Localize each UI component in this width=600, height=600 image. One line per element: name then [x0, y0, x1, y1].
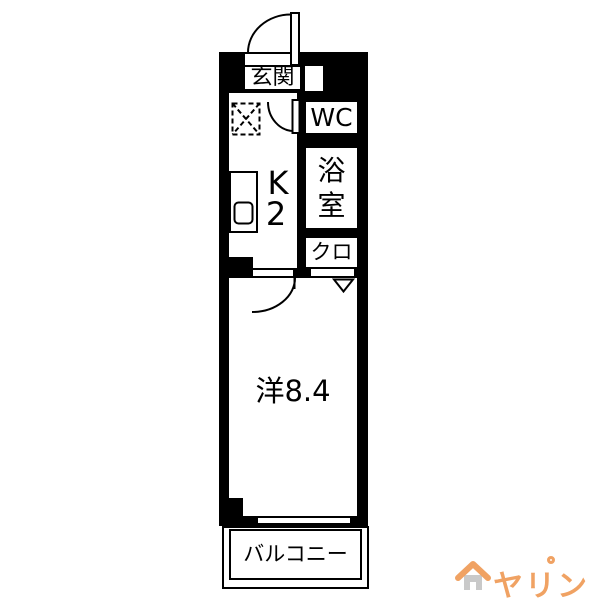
wc-label-text: WC — [310, 105, 352, 130]
closet-label: クロ — [306, 238, 357, 267]
main-room-label-text: 洋8.4 — [255, 377, 330, 406]
kitchen-label-2: 2 — [256, 198, 296, 230]
closet-opening-lintel — [309, 267, 356, 278]
floorplan-canvas: 玄関 WC 浴 室 クロ K 2 洋8.4 バルコニー ヤリンク — [0, 0, 600, 600]
room-door-arc-icon — [252, 278, 295, 312]
bath-char-1: 浴 — [317, 153, 345, 188]
logo: ヤリンク — [455, 558, 600, 598]
logo-text: ヤリンク — [493, 561, 600, 600]
entrance-door-arc-icon — [248, 15, 291, 53]
balcony-label: バルコニー — [229, 541, 362, 567]
house-roof-icon — [455, 560, 491, 594]
logo-ring-icon — [547, 556, 555, 564]
wall-left — [219, 278, 229, 526]
kitchen-label-k: K — [258, 168, 298, 198]
bath-label: 浴 室 — [306, 146, 357, 230]
balcony-label-text: バルコニー — [243, 544, 348, 565]
bath-char-2: 室 — [317, 188, 345, 223]
wc-label: WC — [306, 102, 357, 133]
entrance-opening — [245, 52, 292, 65]
wall-right — [357, 278, 368, 526]
window-strip — [257, 517, 351, 524]
wall-step-bottom-left — [229, 498, 243, 516]
kitchen-2-text: 2 — [266, 198, 286, 230]
closet-label-text: クロ — [311, 242, 353, 263]
wall-step-kitchen — [229, 257, 253, 268]
genkan-label-text: 玄関 — [250, 67, 294, 89]
closet-door-triangle-icon — [334, 280, 353, 292]
main-room-label: 洋8.4 — [229, 375, 357, 407]
room-door-lintel — [251, 268, 295, 278]
entry-side-recess — [305, 66, 323, 91]
genkan-label: 玄関 — [243, 65, 302, 91]
logo-text-chars: ヤリンク — [493, 569, 589, 600]
